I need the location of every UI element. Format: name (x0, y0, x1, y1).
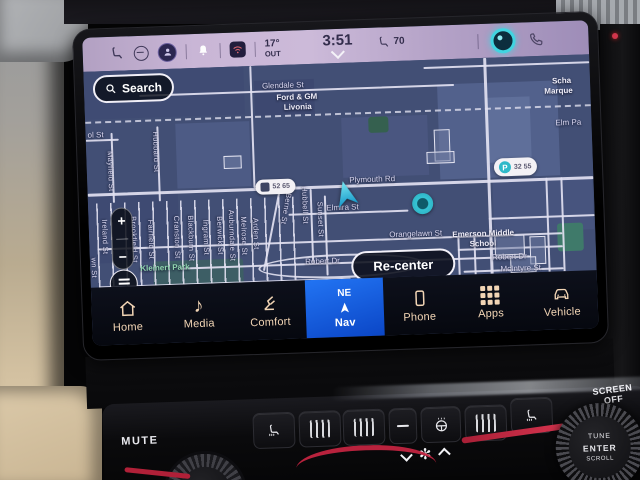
outside-temp: 17° OUT (264, 39, 280, 58)
temp-down-button[interactable] (388, 407, 417, 444)
steering-wheel-icon (432, 416, 450, 434)
dock-label: Comfort (250, 315, 291, 328)
steering-assist-icon[interactable] (133, 45, 149, 61)
vent-slats-icon (476, 414, 497, 433)
vent-button-center[interactable] (342, 409, 385, 446)
mute-button[interactable]: MUTE (121, 434, 159, 447)
menu-line (118, 279, 129, 281)
search-icon (105, 83, 117, 95)
connectivity-icon[interactable] (229, 41, 246, 58)
poi-label: Scha (552, 77, 571, 86)
road-line (310, 189, 315, 263)
zoom-in-button[interactable]: + (117, 212, 126, 228)
voice-assistant-icon[interactable] (490, 27, 516, 53)
fan-up-icon[interactable] (438, 448, 451, 461)
dock-item-phone[interactable]: Phone (383, 275, 456, 335)
clock[interactable]: 3:51 (322, 32, 353, 57)
map-zoom-control[interactable]: + − (110, 207, 134, 270)
park-patch (368, 116, 389, 133)
street-label: Cranston St (172, 216, 181, 259)
building-outline (223, 155, 241, 169)
poi-label: School (469, 240, 496, 249)
divider (116, 238, 128, 239)
vent-slats-icon (310, 419, 331, 438)
driver-profile-icon[interactable] (157, 42, 177, 62)
vehicle-icon (550, 282, 573, 303)
road-line (423, 61, 589, 69)
street-label: Ingram St (202, 220, 211, 255)
poi-label: Elm Pa (555, 119, 581, 128)
dock-item-vehicle[interactable]: Vehicle (525, 270, 598, 330)
street-label: wn St (90, 258, 98, 279)
comfort-seat-icon (260, 293, 281, 314)
street-label: Melrose St (240, 216, 249, 255)
dock-item-nav[interactable]: NE Nav (305, 278, 385, 339)
street-label: Robert Dr (492, 253, 527, 262)
search-button[interactable]: Search (93, 73, 175, 104)
menu-line (118, 283, 129, 285)
recenter-label: Re-center (373, 256, 433, 273)
vehicle-location-arrow (332, 178, 359, 209)
knob-tune-label: TUNE (588, 432, 611, 440)
parking-icon: P (499, 161, 511, 173)
street-label: Mayfield St (106, 151, 115, 192)
heated-steering-button[interactable] (420, 406, 461, 443)
street-label: Sunset St (316, 202, 325, 237)
dock-label: Home (113, 320, 144, 333)
poi-label: Marque (544, 87, 573, 96)
dashboard-photo: 17° OUT 3:51 70 (0, 0, 640, 480)
dock-item-home[interactable]: Home (91, 285, 164, 345)
divider (254, 41, 256, 56)
dock-label: Vehicle (544, 305, 581, 318)
knob-enter-label: ENTER (583, 442, 617, 453)
seat-level-value: 70 (393, 37, 404, 47)
nav-direction-badge: NE (337, 287, 351, 298)
street-label: Hubbell St (301, 186, 310, 224)
parking-info-text: 32 55 (514, 163, 532, 171)
poi-label: Ford & GM (276, 93, 317, 102)
traffic-poi-icon[interactable] (412, 193, 434, 215)
tune-knob-face: TUNE ENTER SCROLL (568, 415, 632, 479)
dock-item-media[interactable]: ♪ Media (162, 283, 235, 343)
poi-label: Livonia (284, 103, 312, 112)
heated-seat-left-button[interactable] (252, 412, 295, 449)
vent-button-left[interactable] (298, 410, 341, 447)
infotainment-display: 17° OUT 3:51 70 (72, 11, 609, 361)
street-label: Hubbard St (151, 131, 160, 172)
heated-seat-icon (266, 422, 283, 439)
dock-label: Media (184, 317, 215, 330)
dock-label: Apps (478, 307, 504, 320)
route-info-pill: 52 65 (255, 179, 295, 195)
status-right-group (477, 22, 545, 58)
street-label: Fairfield St (147, 220, 156, 260)
dock-label: Nav (335, 316, 356, 329)
seat-icon[interactable] (108, 45, 125, 62)
nav-arrow-icon (337, 300, 351, 314)
street-label: Ireland St (101, 219, 110, 254)
screen-content: 17° OUT 3:51 70 (82, 20, 598, 345)
street-label: Berwick St (215, 216, 224, 255)
temp-value: 17° (264, 39, 280, 50)
street-label: Arden St (252, 218, 261, 250)
phone-icon[interactable] (527, 30, 545, 48)
navigation-map[interactable]: Glendale St Plymouth Rd Elmira St Orange… (83, 54, 596, 288)
music-note-icon: ♪ (193, 296, 204, 314)
minus-icon (397, 425, 409, 427)
street-label: Robert Dr (305, 257, 340, 266)
route-info-text: 52 65 (272, 183, 290, 191)
divider (185, 44, 187, 59)
tune-knob[interactable]: TUNE ENTER SCROLL (554, 402, 640, 480)
dock-item-apps[interactable]: Apps (454, 273, 527, 333)
parking-info-pill[interactable]: P 32 55 (494, 157, 537, 176)
knob-scroll-label: SCROLL (586, 455, 614, 462)
dock-item-comfort[interactable]: Comfort (233, 280, 306, 340)
street-label: Auburndale St (227, 210, 236, 262)
divider (477, 34, 479, 49)
bell-icon[interactable] (195, 43, 211, 59)
building-outline (426, 151, 454, 164)
route-marker-icon (260, 182, 269, 191)
dock-label: Phone (403, 310, 436, 323)
center-console: 17° OUT 3:51 70 (0, 0, 640, 480)
apps-grid-icon (481, 285, 501, 305)
street-label: Glendale St (262, 81, 304, 90)
search-label: Search (122, 80, 162, 95)
smartphone-icon (409, 287, 430, 308)
vent-slats-icon (354, 418, 375, 437)
zoom-out-button[interactable]: − (118, 248, 127, 264)
climate-seat-icon (376, 35, 390, 49)
temp-unit: OUT (265, 50, 281, 58)
climate-seat-status[interactable]: 70 (376, 35, 405, 50)
divider (219, 43, 221, 58)
street-label: ol St (87, 131, 103, 140)
home-icon (117, 298, 138, 319)
heated-seat-icon (523, 407, 540, 424)
street-label: Blackburn St (186, 215, 195, 261)
